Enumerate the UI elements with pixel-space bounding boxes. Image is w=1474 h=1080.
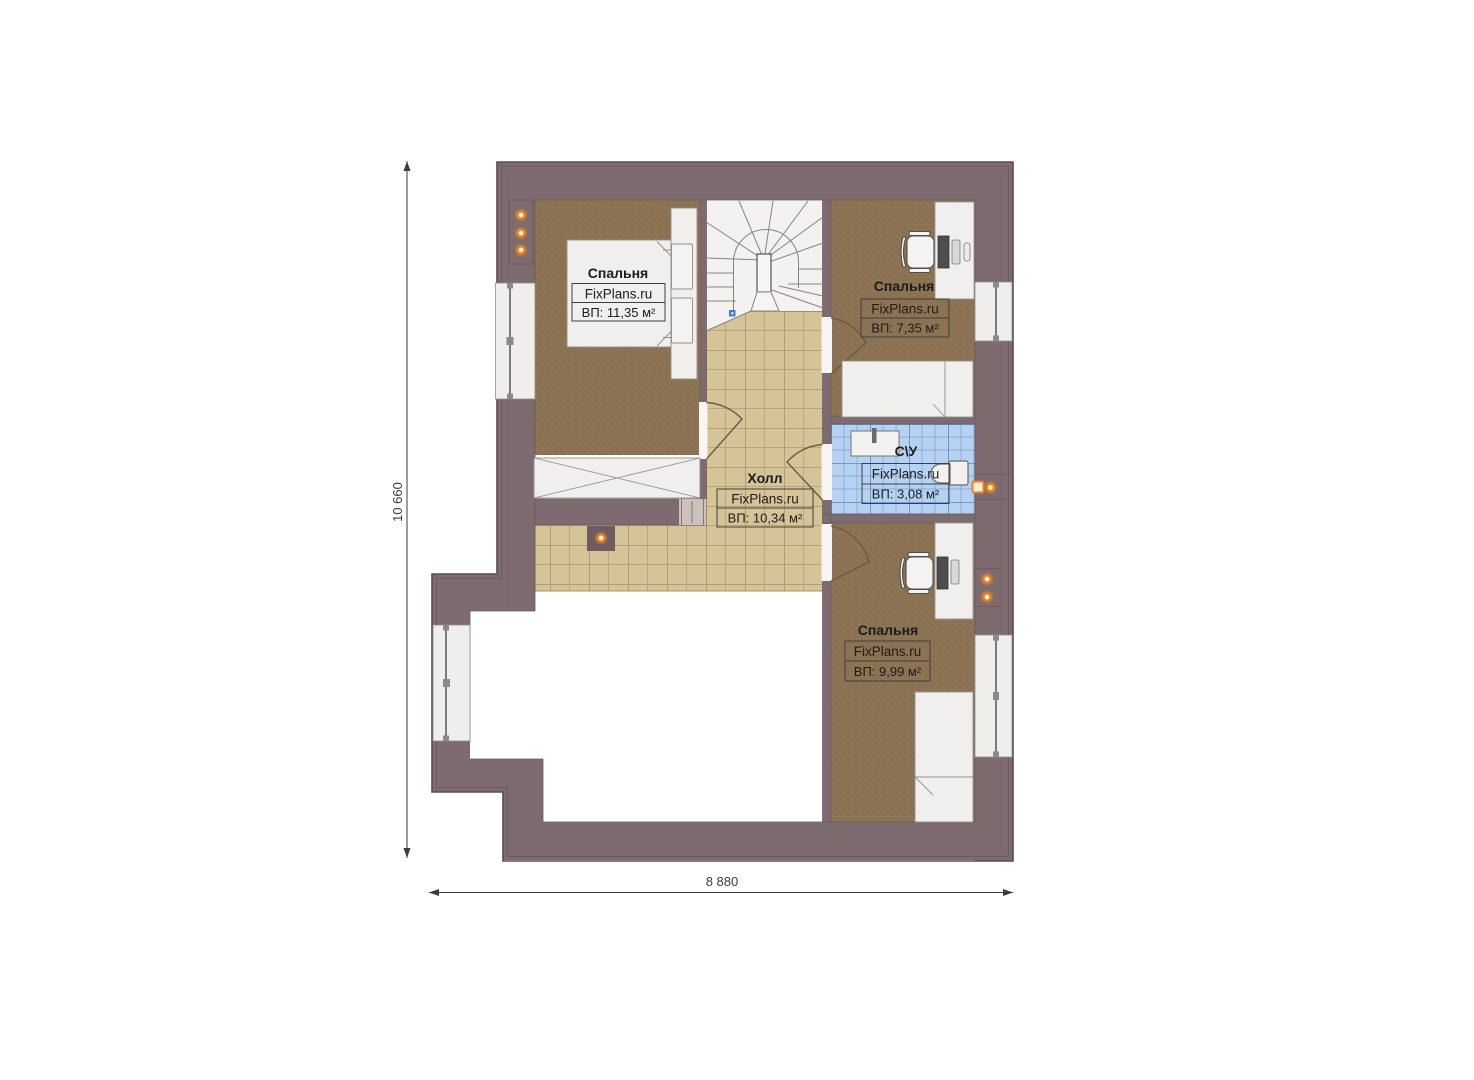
svg-text:Спальня: Спальня	[588, 265, 648, 281]
svg-text:ВП: 7,35 м²: ВП: 7,35 м²	[871, 321, 939, 336]
svg-text:Холл: Холл	[747, 470, 782, 486]
svg-text:10 660: 10 660	[390, 482, 405, 522]
svg-text:ВП: 3,08 м²: ВП: 3,08 м²	[872, 487, 940, 502]
svg-text:ВП: 11,35 м²: ВП: 11,35 м²	[582, 305, 656, 320]
svg-text:Спальня: Спальня	[874, 278, 934, 294]
svg-text:FixPlans.ru: FixPlans.ru	[871, 302, 939, 317]
svg-text:С\У: С\У	[895, 443, 918, 459]
svg-text:Спальня: Спальня	[858, 622, 918, 638]
svg-text:FixPlans.ru: FixPlans.ru	[854, 644, 922, 659]
svg-text:ВП: 9,99 м²: ВП: 9,99 м²	[854, 664, 922, 679]
svg-text:FixPlans.ru: FixPlans.ru	[731, 492, 799, 507]
svg-text:8 880: 8 880	[706, 874, 739, 889]
svg-text:ВП: 10,34 м²: ВП: 10,34 м²	[728, 511, 803, 526]
svg-text:FixPlans.ru: FixPlans.ru	[872, 467, 940, 482]
svg-text:FixPlans.ru: FixPlans.ru	[585, 287, 653, 302]
